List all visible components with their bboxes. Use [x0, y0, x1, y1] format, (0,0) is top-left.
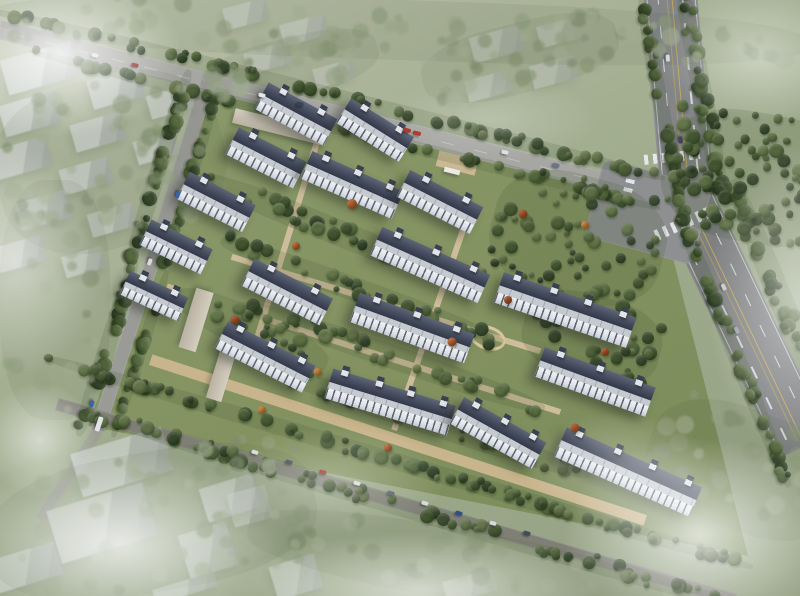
tree-canopy: [650, 87, 663, 100]
tree-canopy: [697, 209, 707, 219]
tree-canopy: [41, 576, 63, 596]
tree-canopy: [192, 144, 206, 158]
tree-canopy: [110, 93, 133, 116]
tree-canopy: [67, 261, 77, 271]
tree-canopy: [752, 227, 760, 235]
tree-canopy: [25, 189, 34, 198]
tree-canopy: [421, 143, 434, 156]
tree-canopy: [300, 268, 309, 277]
tree-canopy: [459, 44, 472, 57]
tree-canopy: [32, 521, 52, 541]
tree-canopy: [580, 512, 595, 527]
tree-canopy: [777, 519, 788, 530]
tree-canopy: [585, 581, 598, 594]
tree-canopy: [453, 568, 468, 583]
tree-canopy: [762, 162, 772, 172]
autumn-tree: [231, 316, 240, 325]
tree-canopy: [17, 553, 26, 562]
tree-canopy: [18, 218, 33, 233]
tree-canopy: [341, 51, 356, 66]
tree-canopy: [34, 116, 45, 127]
tree-canopy: [82, 310, 90, 318]
tree-canopy: [173, 102, 187, 116]
tree-canopy: [293, 5, 307, 19]
tree-canopy: [732, 180, 748, 196]
tree-canopy: [785, 239, 795, 249]
tree-canopy: [487, 485, 496, 494]
tree-canopy: [321, 477, 337, 493]
tree-canopy: [790, 525, 800, 542]
tree-canopy: [213, 510, 232, 529]
tree-canopy: [717, 189, 734, 206]
tree-canopy: [786, 423, 800, 442]
tree-canopy: [4, 182, 22, 200]
tree-canopy: [87, 375, 95, 383]
tree-canopy: [74, 473, 92, 491]
tree-canopy: [23, 33, 32, 42]
tree-canopy: [302, 524, 314, 536]
tree-canopy: [780, 196, 791, 207]
tree-canopy: [344, 526, 355, 537]
tree-canopy: [82, 270, 99, 287]
tree-canopy: [411, 363, 423, 375]
tree-canopy: [625, 235, 637, 247]
tree-canopy: [229, 513, 241, 525]
tree-canopy: [33, 473, 53, 493]
tree-canopy: [58, 467, 72, 481]
tree-canopy: [476, 32, 493, 49]
tree-canopy: [395, 20, 409, 34]
tree-canopy: [641, 331, 655, 345]
tree-canopy: [37, 187, 56, 206]
tree-canopy: [88, 80, 100, 92]
tree-canopy: [595, 517, 604, 526]
tree-canopy: [332, 285, 340, 293]
tree-canopy: [785, 210, 794, 219]
tree-canopy: [129, 19, 145, 35]
tree-canopy: [114, 17, 125, 28]
tree-canopy: [289, 538, 301, 550]
tree-canopy: [528, 271, 535, 278]
tree-canopy: [768, 295, 781, 308]
tree-canopy: [788, 23, 798, 33]
tree-canopy: [691, 51, 703, 63]
tree-canopy: [580, 174, 588, 182]
tree-canopy: [563, 509, 575, 521]
tree-canopy: [694, 584, 702, 592]
tree-canopy: [132, 0, 148, 7]
tree-canopy: [326, 505, 338, 517]
tree-canopy: [113, 0, 122, 2]
tree-canopy: [273, 43, 290, 60]
tree-canopy: [782, 137, 791, 146]
autumn-tree: [384, 444, 392, 452]
tree-canopy: [614, 568, 629, 583]
tree-canopy: [600, 182, 609, 191]
tree-canopy: [785, 182, 795, 192]
tree-canopy: [164, 385, 175, 396]
tree-canopy: [260, 457, 278, 475]
tree-canopy: [446, 115, 462, 131]
tree-canopy: [196, 440, 215, 459]
tree-canopy: [773, 113, 784, 124]
tree-canopy: [64, 362, 78, 376]
tree-canopy: [294, 430, 304, 440]
tree-canopy: [244, 57, 255, 68]
tree-canopy: [389, 453, 403, 467]
tree-canopy: [713, 121, 722, 130]
tree-canopy: [218, 534, 233, 549]
car: [666, 54, 670, 61]
autumn-tree: [581, 221, 589, 229]
tree-canopy: [613, 289, 622, 298]
tree-canopy: [563, 238, 574, 249]
tree-canopy: [328, 216, 338, 226]
tree-canopy: [433, 473, 441, 481]
tree-canopy: [739, 134, 750, 145]
tree-canopy: [635, 256, 646, 267]
tree-canopy: [649, 22, 657, 30]
tree-canopy: [788, 116, 795, 123]
tree-canopy: [31, 45, 41, 55]
tree-canopy: [148, 84, 164, 100]
tree-canopy: [192, 561, 212, 581]
tree-canopy: [341, 436, 350, 445]
aerial-rendering-canvas: ↑↑↑: [0, 0, 800, 596]
tree-canopy: [573, 252, 585, 264]
tree-canopy: [87, 501, 105, 519]
tree-canopy: [572, 182, 582, 192]
tree-canopy: [600, 260, 612, 272]
tree-canopy: [134, 219, 144, 229]
tree-canopy: [66, 25, 84, 43]
tree-canopy: [779, 168, 790, 179]
tree-canopy: [444, 473, 457, 486]
tree-canopy: [540, 577, 558, 595]
tree-canopy: [793, 496, 800, 508]
tree-canopy: [775, 51, 794, 70]
tree-canopy: [64, 405, 72, 413]
autumn-tree: [519, 210, 528, 219]
tree-canopy: [51, 296, 70, 315]
tree-canopy: [191, 466, 207, 482]
tree-canopy: [215, 20, 232, 37]
tree-canopy: [112, 582, 126, 596]
tree-canopy: [380, 41, 391, 52]
tree-canopy: [269, 509, 280, 520]
tree-canopy: [786, 445, 800, 467]
tree-canopy: [564, 151, 573, 160]
tree-canopy: [20, 17, 30, 27]
tree-canopy: [116, 163, 135, 182]
tree-canopy: [503, 239, 519, 255]
car: [679, 136, 683, 143]
tree-canopy: [679, 0, 692, 1]
tree-canopy: [419, 53, 437, 71]
tree-canopy: [8, 357, 24, 373]
tree-canopy: [723, 155, 735, 167]
tree-canopy: [229, 456, 246, 473]
tree-canopy: [590, 151, 604, 165]
tree-canopy: [214, 460, 232, 478]
tree-canopy: [276, 487, 287, 498]
tree-canopy: [183, 478, 195, 490]
tree-canopy: [762, 49, 775, 62]
autumn-tree: [448, 338, 457, 347]
tree-canopy: [699, 219, 711, 231]
tree-canopy: [752, 111, 760, 119]
tree-canopy: [581, 264, 589, 272]
tree-canopy: [38, 381, 50, 393]
tree-canopy: [748, 48, 760, 60]
tree-canopy: [572, 192, 580, 200]
tree-canopy: [633, 525, 642, 534]
tree-canopy: [374, 98, 382, 106]
tree-canopy: [39, 281, 52, 294]
tree-canopy: [732, 116, 741, 125]
autumn-tree: [571, 424, 580, 433]
tree-canopy: [591, 62, 603, 74]
tree-canopy: [734, 167, 746, 179]
tree-canopy: [518, 32, 528, 42]
tree-canopy: [174, 82, 186, 94]
tree-canopy: [544, 229, 557, 242]
autumn-tree: [314, 368, 322, 376]
tree-canopy: [542, 269, 556, 283]
tree-canopy: [240, 556, 250, 566]
tree-canopy: [114, 457, 124, 467]
tree-canopy: [164, 453, 176, 465]
tree-canopy: [35, 128, 52, 145]
autumn-tree: [347, 199, 357, 209]
tree-canopy: [755, 35, 764, 44]
tree-canopy: [794, 235, 800, 247]
tree-canopy: [711, 132, 726, 147]
tree-canopy: [572, 271, 582, 281]
tree-canopy: [746, 172, 760, 186]
autumn-tree: [504, 296, 512, 304]
tree-canopy: [341, 447, 350, 456]
tree-canopy: [437, 370, 454, 387]
tree-canopy: [537, 187, 548, 198]
autumn-tree: [292, 242, 300, 250]
tree-canopy: [761, 461, 774, 474]
tree-canopy: [208, 306, 227, 325]
tree-canopy: [94, 246, 104, 256]
tree-canopy: [82, 576, 99, 593]
tree-canopy: [222, 38, 237, 53]
tree-canopy: [55, 220, 65, 230]
tree-canopy: [310, 536, 327, 553]
tree-canopy: [726, 19, 744, 37]
tree-canopy: [604, 204, 619, 219]
tree-belt: [0, 180, 110, 420]
tree-canopy: [672, 153, 684, 165]
tree-canopy: [379, 569, 397, 587]
tree-canopy: [194, 31, 211, 48]
tree-canopy: [66, 163, 78, 175]
tree-canopy: [497, 254, 508, 265]
tree-canopy: [661, 27, 680, 46]
tree-canopy: [457, 435, 465, 443]
tree-canopy: [191, 51, 202, 62]
tree-canopy: [546, 328, 562, 344]
tree-canopy: [615, 252, 626, 263]
tree-canopy: [1, 140, 14, 153]
tree-canopy: [559, 188, 569, 198]
tree-canopy: [213, 299, 223, 309]
tree-canopy: [489, 50, 500, 61]
tree-canopy: [619, 222, 635, 238]
tree-canopy: [158, 475, 169, 486]
tree-canopy: [268, 28, 278, 38]
tree-canopy: [692, 447, 705, 460]
tree-canopy: [158, 495, 171, 508]
tree-canopy: [430, 116, 444, 130]
tree-canopy: [531, 230, 543, 242]
tree-canopy: [718, 107, 729, 118]
autumn-tree: [258, 406, 266, 414]
tree-canopy: [446, 46, 458, 58]
tree-canopy: [81, 4, 93, 16]
tree-canopy: [647, 67, 662, 82]
tree-canopy: [653, 43, 668, 58]
tree-canopy: [386, 494, 398, 506]
autumn-tree: [601, 348, 609, 356]
tree-canopy: [568, 557, 583, 572]
tree-canopy: [724, 493, 735, 504]
tree-canopy: [554, 12, 567, 25]
tree-canopy: [173, 0, 192, 13]
tree-canopy: [487, 245, 497, 255]
tree-canopy: [552, 199, 560, 207]
tree-canopy: [566, 57, 577, 68]
tree-canopy: [490, 542, 509, 561]
tree-canopy: [491, 223, 505, 237]
tree-canopy: [580, 33, 590, 43]
